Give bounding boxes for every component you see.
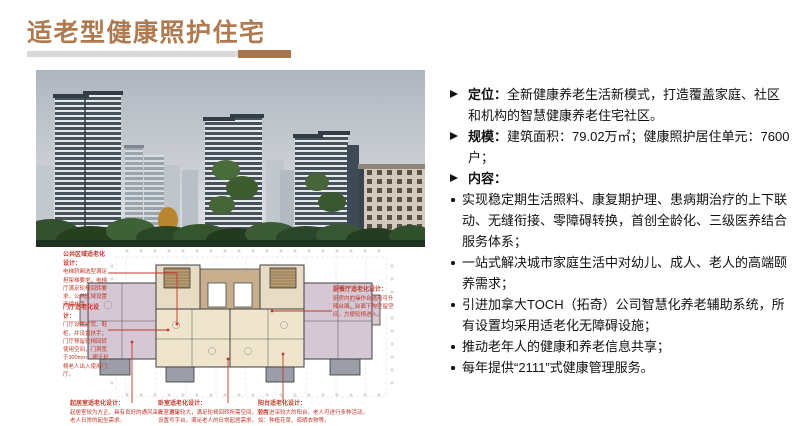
- bullet-text: 引进加拿大TOCH（拓奇）公司智慧化养老辅助系统，所有设置均采用适老化无障碍设施…: [462, 297, 785, 333]
- building-rendering-image: [36, 70, 425, 247]
- bullet-text: 一站式解决城市家庭生活中对幼儿、成人、老人的高端颐养需求；: [462, 255, 787, 291]
- title-underline-bar: [27, 51, 290, 57]
- arrow-bullet-icon: [450, 132, 458, 140]
- plan-annotation-kitchen: 厨餐厅适老化设计： 厨房内的操作台选用可升降台面，台面下掏空留空间，方便轮椅进入…: [333, 286, 395, 319]
- bullet-text: 建筑面积：79.02万㎡；健康照护居住单元：7600户；: [468, 129, 789, 165]
- rendering-illustration: [36, 70, 425, 247]
- annotation-title: 卧室适老化设计：: [158, 400, 270, 409]
- bullet-item-info-sharing: 推动老年人的健康和养老信息共享；: [448, 336, 790, 357]
- annotation-body: 门厅设置坐凳、鞋柜，并设置扶手；门厅预留轮椅回转使用空间，门洞宽于300mm，便…: [63, 321, 110, 379]
- bullet-item-scale: 规模：建筑面积：79.02万㎡；健康照护居住单元：7600户；: [448, 126, 790, 168]
- bullet-item-positioning: 定位：全新健康养老生活新模式，打造覆盖家庭、社区和机构的智慧健康养老住宅社区。: [448, 84, 790, 126]
- dot-bullet-icon: [451, 345, 455, 349]
- dot-bullet-icon: [451, 366, 455, 370]
- presentation-slide: 适老型健康照护住宅: [0, 0, 800, 426]
- annotation-title: 门厅适老化设计：: [63, 304, 110, 321]
- plan-annotation-public-area: 公共区域适老化设计： 电梯轿厢选型满足担架梯要求，电梯厅满足轮椅回转要求，公共区…: [63, 251, 110, 310]
- annotation-body: 厨房内的操作台选用可升降台面，台面下掏空留空间，方便轮椅进入。: [333, 295, 395, 320]
- annotation-title: 厨餐厅适老化设计：: [333, 286, 395, 295]
- plan-annotation-bedroom: 卧室适老化设计： 卧室进深较大，满足轮椅回转所需空间，室内设置写字台，满足老人的…: [158, 400, 270, 425]
- annotation-body: 卧室进深较大，满足轮椅回转所需空间，室内设置写字台，满足老人的日常起居需求。: [158, 409, 270, 426]
- arrow-bullet-icon: [450, 90, 458, 98]
- plan-annotation-balcony: 阳台适老化设计： 设置进深较大的阳台，老人可进行多种活动，如：种植花草、晾晒衣物…: [258, 400, 368, 425]
- annotation-title: 公共区域适老化设计：: [63, 251, 110, 268]
- bullet-text: 每年提供“2111”式健康管理服务。: [462, 360, 654, 375]
- title-underline-accent: [238, 50, 291, 58]
- bullet-text: 实现稳定期生活照料、康复期护理、患病期治疗的上下联动、无缝衔接、零障碍转换，首创…: [462, 192, 787, 249]
- plan-annotation-lobby: 门厅适老化设计： 门厅设置坐凳、鞋柜，并设置扶手；门厅预留轮椅回转使用空间，门洞…: [63, 304, 110, 379]
- dot-bullet-icon: [451, 303, 455, 307]
- bullet-label: 规模：: [468, 129, 507, 144]
- dot-bullet-icon: [451, 198, 455, 202]
- bullet-text: 推动老年人的健康和养老信息共享；: [462, 339, 670, 354]
- annotation-body: 设置进深较大的阳台，老人可进行多种活动，如：种植花草、晾晒衣物等。: [258, 409, 368, 426]
- page-title: 适老型健康照护住宅: [27, 13, 266, 49]
- content-bullet-list: 定位：全新健康养老生活新模式，打造覆盖家庭、社区和机构的智慧健康养老住宅社区。 …: [448, 84, 790, 378]
- arrow-bullet-icon: [450, 174, 458, 182]
- bullet-text: 全新健康养老生活新模式，打造覆盖家庭、社区和机构的智慧健康养老住宅社区。: [468, 87, 780, 123]
- bullet-item-2111-service: 每年提供“2111”式健康管理服务。: [448, 357, 790, 378]
- bullet-label: 定位：: [468, 87, 507, 102]
- bullet-item-one-stop: 一站式解决城市家庭生活中对幼儿、成人、老人的高端颐养需求；: [448, 252, 790, 294]
- bullet-item-service-system: 实现稳定期生活照料、康复期护理、患病期治疗的上下联动、无缝衔接、零障碍转换，首创…: [448, 189, 790, 252]
- dot-bullet-icon: [451, 261, 455, 265]
- annotation-title: 阳台适老化设计：: [258, 400, 368, 409]
- bullet-item-toch-system: 引进加拿大TOCH（拓奇）公司智慧化养老辅助系统，所有设置均采用适老化无障碍设施…: [448, 294, 790, 336]
- bullet-item-contents: 内容：: [448, 168, 790, 189]
- bullet-label: 内容：: [468, 171, 507, 186]
